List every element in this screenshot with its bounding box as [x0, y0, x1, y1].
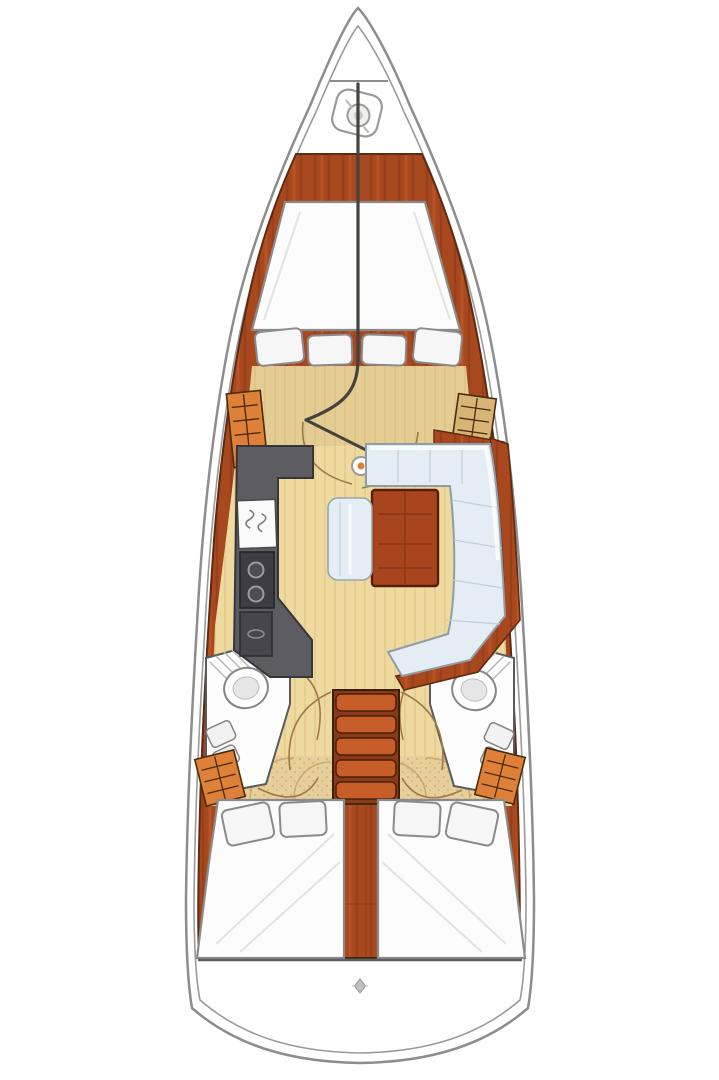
- galley-sink: [237, 499, 277, 548]
- stair-tread: [336, 716, 396, 733]
- galley-oven: [240, 612, 272, 656]
- boat-floorplan-svg: [0, 0, 719, 1080]
- v-berth-pillow: [254, 328, 304, 367]
- stove-burner: [249, 587, 264, 602]
- v-berth: [252, 202, 460, 330]
- stair-tread: [336, 782, 396, 799]
- aft-berth-pillow: [393, 801, 441, 837]
- stair-tread: [336, 760, 396, 777]
- galley-stove: [240, 552, 274, 608]
- v-berth-pillow: [361, 334, 406, 366]
- v-berth-pillow: [307, 334, 352, 366]
- table-side-bench: [328, 498, 372, 580]
- v-berth-pillow: [412, 328, 462, 367]
- aft-cabin-starboard: [378, 800, 525, 958]
- aft-cabin-port: [197, 800, 344, 958]
- stove-burner: [249, 563, 264, 578]
- aft-berth-pillow: [279, 801, 327, 837]
- stair-tread: [336, 694, 396, 711]
- stair-tread: [336, 738, 396, 755]
- boat-floorplan-screenshot: [0, 0, 719, 1080]
